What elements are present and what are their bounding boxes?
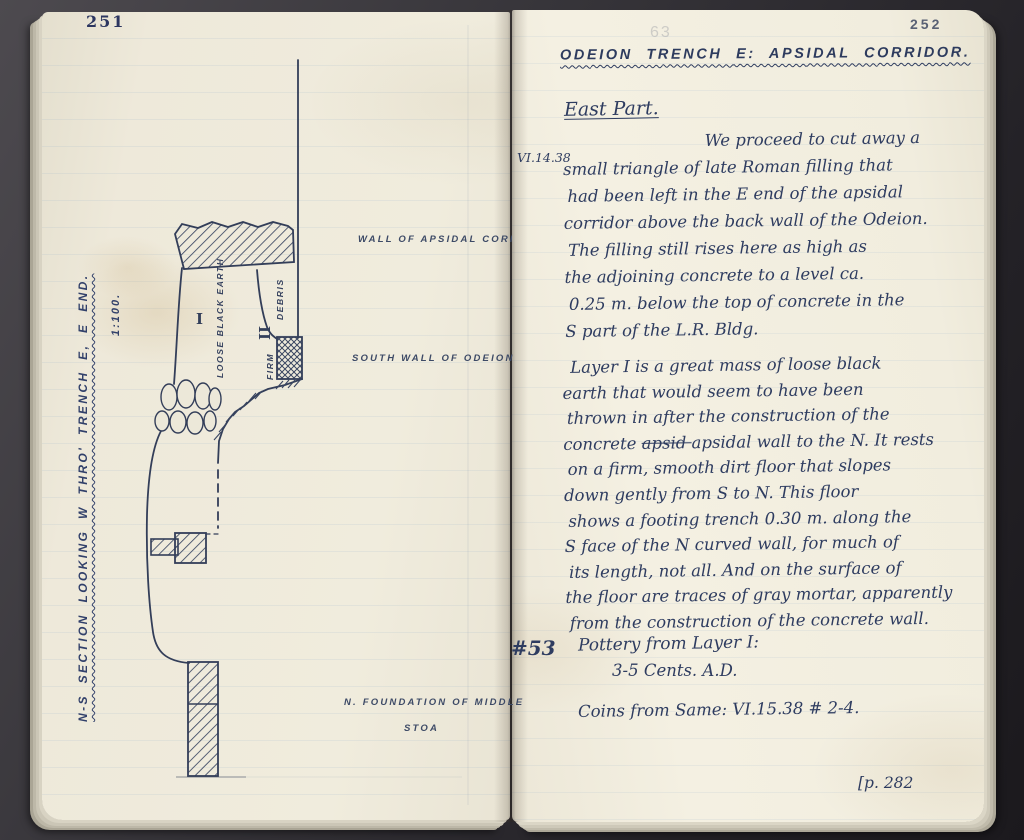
apsidal-wall-hatch-band (175, 222, 294, 269)
faint-embossed-stamp: 63 (650, 24, 672, 42)
label-wall-of-apsidal-corridor: WALL OF APSIDAL CORRIDOR (358, 234, 512, 245)
scale-label: 1:100. (110, 293, 122, 336)
layer-i-fill-label: LOOSE BLACK EARTH (215, 257, 225, 378)
stoa-foundation-block (176, 662, 246, 777)
margin-guide-line (246, 25, 468, 805)
dashed-projection-line (206, 470, 221, 534)
content-overlay: 251 N-S SECTION LOOKING W THRO' TRENCH E… (0, 0, 1024, 840)
label-stoa: STOA (404, 723, 439, 734)
ground-line (214, 379, 302, 463)
layer-ii-debris-label: DEBRIS (275, 278, 285, 320)
odeion-wall-block (277, 337, 302, 379)
label-south-wall-of-odeion: SOUTH WALL OF ODEION (352, 353, 515, 364)
footer-page-ref: [p. 282 (858, 774, 913, 792)
layer-i-numeral: I (196, 310, 203, 328)
find-pottery-line: Pottery from Layer I: (578, 632, 759, 655)
layer-ii-firm-label: FIRM (265, 353, 275, 380)
paragraph-2: Layer I is a great mass of loose blackea… (554, 349, 1003, 637)
notebook-scan: 251 N-S SECTION LOOKING W THRO' TRENCH E… (0, 0, 1024, 840)
paragraph-1: We proceed to cut away asmall triangle o… (555, 123, 1003, 345)
entry-title: ODEION TRENCH E: APSIDAL CORRIDOR. (560, 45, 980, 64)
find-date-line: 3-5 Cents. A.D. (612, 661, 737, 680)
right-page-number: 252 (910, 16, 942, 32)
entry-subtitle: East Part. (564, 97, 659, 121)
layer-ii-numeral: II (256, 326, 274, 340)
section-caption-vertical: N-S SECTION LOOKING W THRO' TRENCH E, E … (76, 274, 90, 722)
stones-cluster (155, 380, 221, 434)
label-n-foundation-of-middle: N. FOUNDATION OF MIDDLE (344, 697, 524, 708)
coins-line: Coins from Same: VI.15.38 # 2-4. (578, 698, 860, 721)
left-page-number: 251 (86, 12, 125, 31)
middle-wall-blocks (151, 533, 206, 563)
find-number: #53 (511, 636, 556, 660)
